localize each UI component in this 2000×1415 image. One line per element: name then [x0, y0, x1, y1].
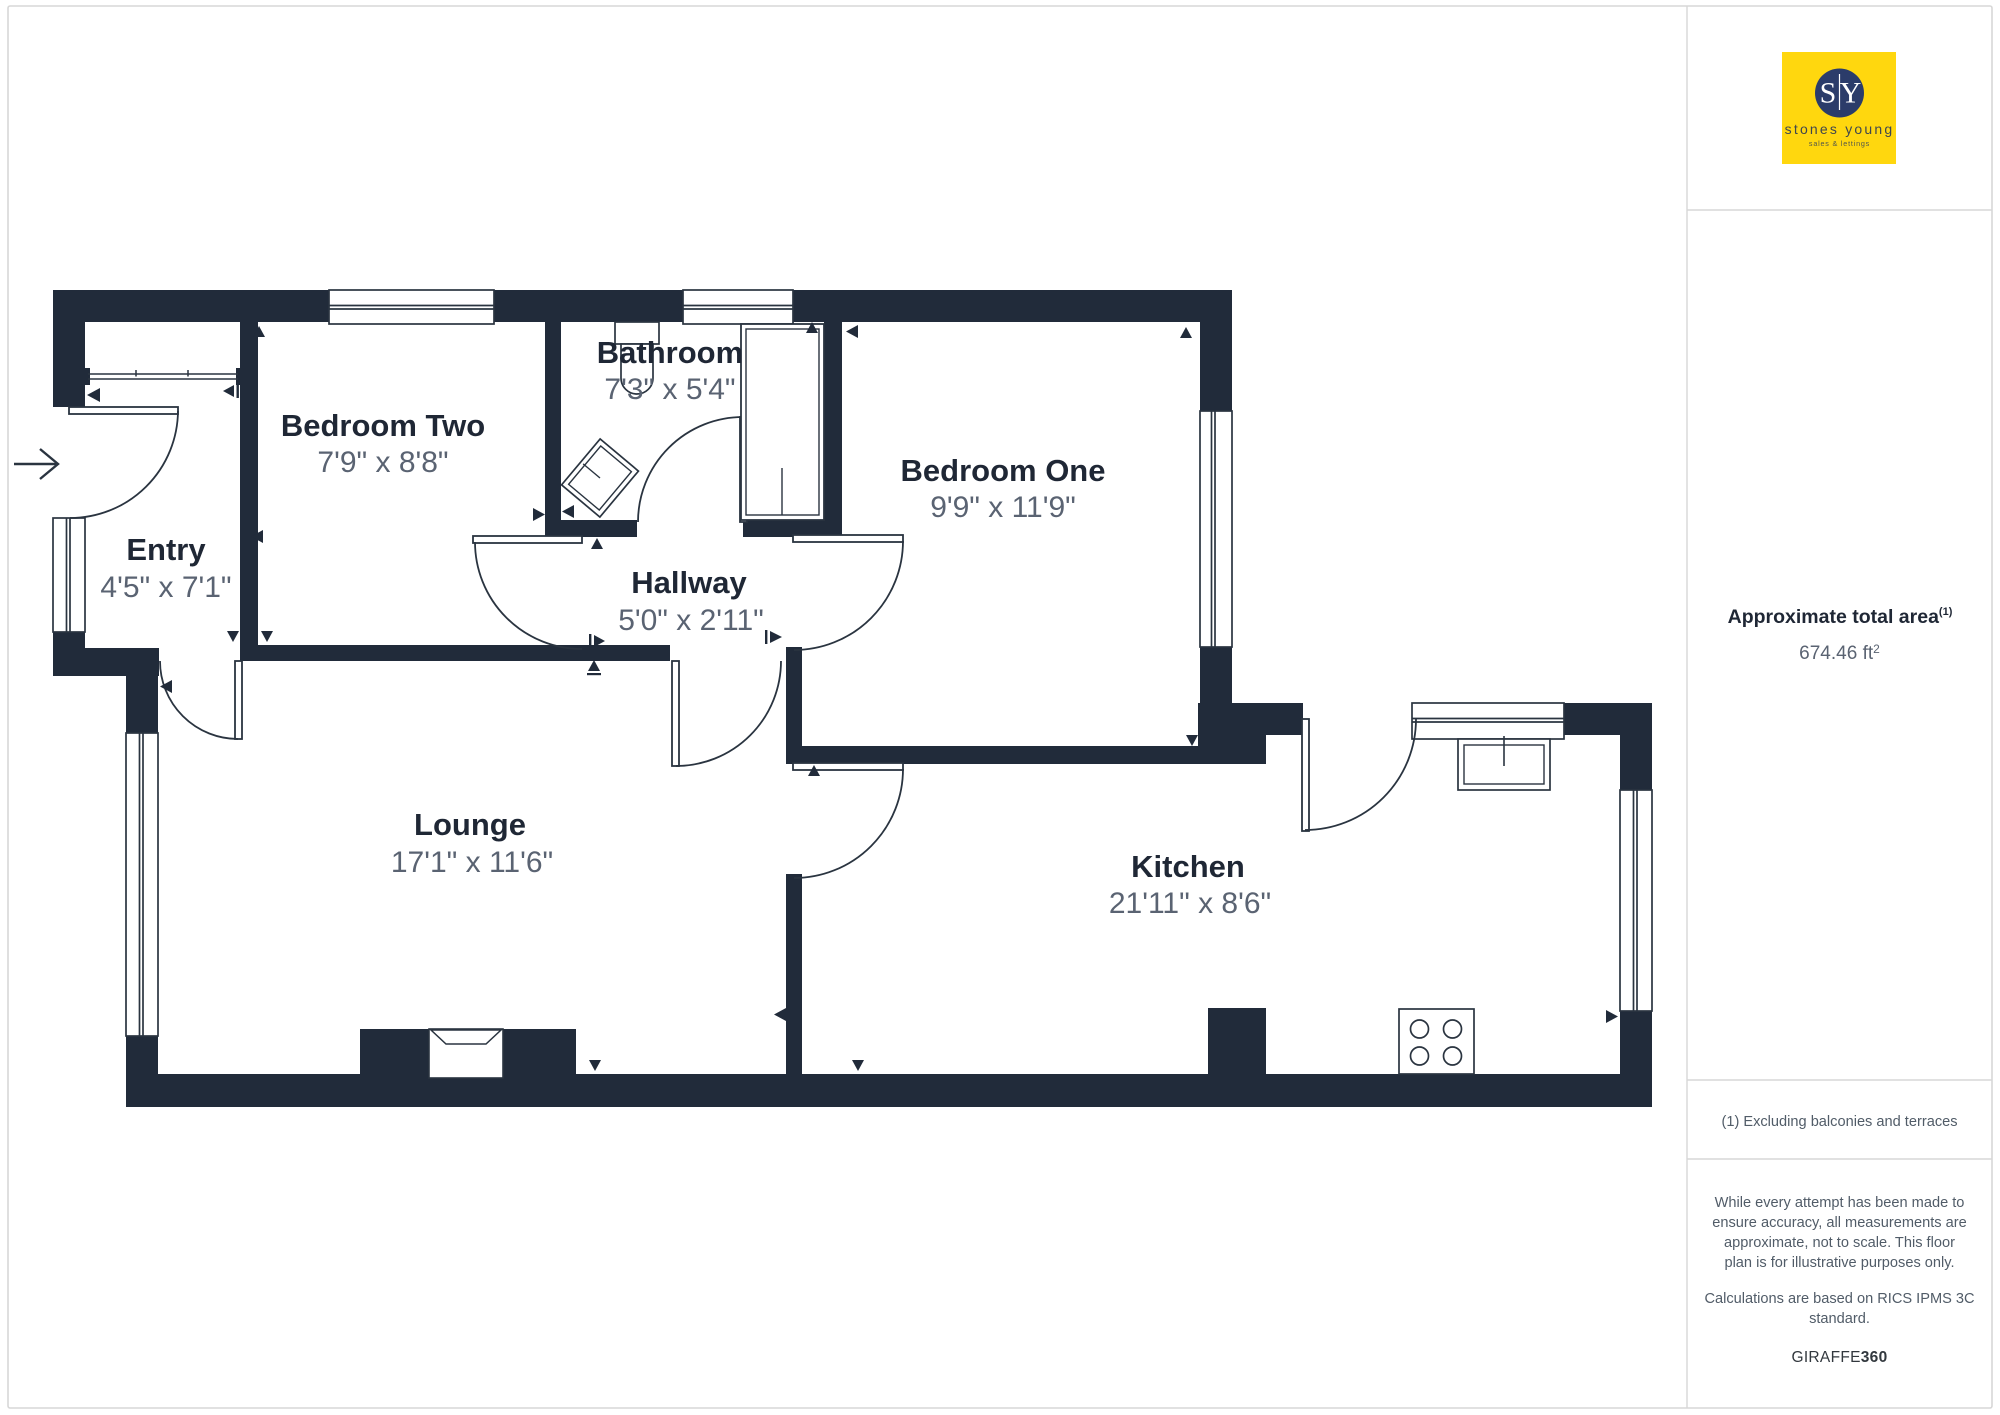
svg-text:7'9" x 8'8": 7'9" x 8'8": [317, 446, 448, 479]
svg-text:Entry: Entry: [126, 532, 206, 567]
svg-text:While every attempt has been m: While every attempt has been made to: [1715, 1195, 1965, 1211]
svg-text:7'3" x 5'4": 7'3" x 5'4": [604, 373, 735, 406]
svg-text:Bedroom Two: Bedroom Two: [281, 408, 485, 443]
svg-text:Hallway: Hallway: [631, 565, 747, 600]
svg-text:9'9" x 11'9": 9'9" x 11'9": [930, 491, 1076, 524]
svg-text:Approximate total area(1): Approximate total area(1): [1728, 606, 1953, 628]
svg-text:sales & lettings: sales & lettings: [1809, 139, 1870, 148]
svg-text:5'0" x 2'11": 5'0" x 2'11": [618, 604, 764, 637]
svg-text:GIRAFFE360: GIRAFFE360: [1791, 1349, 1887, 1366]
svg-text:ensure accuracy, all measureme: ensure accuracy, all measurements are: [1712, 1215, 1966, 1231]
svg-text:standard.: standard.: [1809, 1311, 1870, 1327]
svg-text:17'1" x 11'6": 17'1" x 11'6": [391, 846, 553, 879]
svg-text:Kitchen: Kitchen: [1131, 849, 1245, 884]
svg-text:674.46 ft2: 674.46 ft2: [1799, 642, 1880, 664]
svg-text:S: S: [1820, 77, 1837, 110]
svg-text:Bedroom One: Bedroom One: [901, 453, 1106, 488]
svg-text:(1) Excluding balconies and te: (1) Excluding balconies and terraces: [1721, 1114, 1957, 1130]
svg-text:stones young: stones young: [1785, 121, 1895, 137]
svg-text:plan is for illustrative purpo: plan is for illustrative purposes only.: [1724, 1255, 1954, 1271]
svg-text:Bathroom: Bathroom: [597, 335, 743, 370]
svg-text:Y: Y: [1840, 77, 1862, 110]
svg-text:Calculations are based on RICS: Calculations are based on RICS IPMS 3C: [1704, 1291, 1974, 1307]
svg-text:Lounge: Lounge: [414, 807, 526, 842]
svg-text:approximate, not to scale. Thi: approximate, not to scale. This floor: [1724, 1235, 1955, 1251]
svg-text:21'11" x 8'6": 21'11" x 8'6": [1109, 887, 1271, 920]
svg-text:4'5" x 7'1": 4'5" x 7'1": [100, 571, 231, 604]
